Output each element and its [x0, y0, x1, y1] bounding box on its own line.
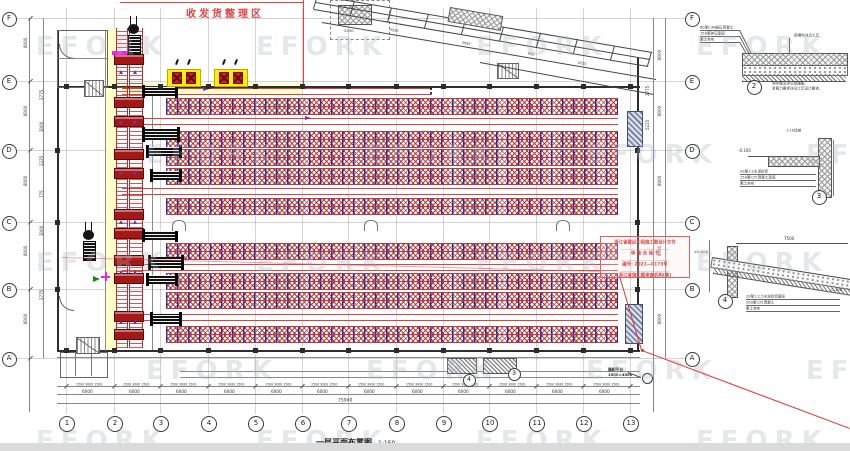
room-bottom-left — [60, 352, 108, 378]
green-arrow — [93, 276, 100, 282]
column — [158, 348, 163, 353]
rack-row — [166, 206, 618, 215]
dim-sub: 1500 3000 1500 — [499, 383, 525, 386]
conveyor-station — [114, 149, 144, 160]
d4-vline — [709, 240, 710, 292]
dim-bay: 6000 — [412, 390, 423, 394]
column — [346, 348, 351, 353]
grid-bubble-col-9: 9 — [436, 416, 452, 432]
dim-left: 8000 — [24, 38, 28, 48]
grid-bubble-col-5: 5 — [248, 416, 264, 432]
watermark: EFORK — [806, 356, 850, 386]
conveyor-line — [129, 28, 143, 348]
dim-bay: 6000 — [176, 390, 187, 394]
ramp-hatch — [447, 7, 503, 31]
grid-bubble-row-left-D: D — [2, 144, 17, 159]
floor-plan-layer: 245042503050950425060001500 3000 1500600… — [0, 0, 850, 451]
column — [346, 84, 351, 89]
aisle-conveyor-lines — [122, 314, 618, 321]
column — [158, 84, 163, 89]
aisle-conveyor-lines — [122, 188, 618, 195]
dim-left: 8000 — [24, 106, 28, 116]
column — [534, 348, 539, 353]
d4-dim — [736, 243, 848, 244]
dim-sub: 1500 3000 1500 — [546, 383, 572, 386]
flow-arrow-up — [119, 320, 123, 324]
partition-line — [180, 371, 640, 372]
hook-mark — [175, 59, 179, 65]
grid-bubble-col-12: 12 — [576, 416, 592, 432]
conveyor-station — [114, 273, 144, 284]
column-symbol — [172, 220, 186, 231]
d2-leader — [700, 42, 740, 43]
grid-bubble-row-left-B: B — [2, 283, 17, 298]
grid-bubble-row-left-A: A — [2, 352, 17, 367]
d3-top: 1:10找坡 — [786, 129, 801, 133]
pallet — [172, 72, 182, 84]
d3-elev: -0.100 — [738, 149, 751, 153]
stacker-crane — [148, 275, 176, 284]
stamp-line-2: 审 查 合 格 书 — [621, 249, 669, 255]
d4-dim-label: 7500 — [784, 237, 794, 241]
ramp-dim: 950 — [527, 52, 534, 57]
column — [581, 348, 586, 353]
dim-right: 8000 — [658, 50, 662, 60]
stamp-line-3: 编号: 2021—0173号 — [621, 260, 669, 266]
conveyor-station — [114, 228, 144, 239]
dim-sub: 1500 3000 1500 — [218, 383, 244, 386]
review-stamp: 浙江省建设工程施工图设计文件 审 查 合 格 书 编号: 2021—0173号 … — [600, 236, 690, 278]
grid-bubble-col-11: 11 — [529, 416, 545, 432]
platform-note-1: 装卸平台 — [608, 368, 623, 372]
stacker-crane — [152, 314, 180, 324]
column — [64, 84, 69, 89]
dim-bay: 6000 — [505, 390, 516, 394]
magenta-cross-v — [105, 272, 107, 281]
grid-bubble-col-10: 10 — [482, 416, 498, 432]
column — [628, 348, 633, 353]
column — [300, 348, 305, 353]
grid-line-row-A — [14, 358, 700, 359]
dim-bay: 6000 — [129, 390, 140, 394]
stairs — [76, 337, 100, 354]
rack-row — [166, 139, 618, 148]
grid-line-col-3 — [160, 8, 161, 414]
dim-left: 2775 — [40, 290, 44, 300]
dim-sub: 1500 3000 1500 — [265, 383, 291, 386]
grid-bubble-col-3: 3 — [153, 416, 169, 432]
dim-sub: 1500 3000 1500 — [170, 383, 196, 386]
column — [394, 348, 399, 353]
dim-total: 75940 — [338, 398, 352, 403]
grid-bubble-row-right-A: A — [685, 352, 700, 367]
dock-hatch — [627, 111, 643, 147]
flow-arrow-right — [305, 116, 311, 120]
page-bottom-band — [0, 443, 850, 451]
flow-arrow-up — [119, 70, 123, 74]
grid-bubble-row-right-B: B — [685, 283, 700, 298]
column — [300, 84, 305, 89]
dim-right: 8000 — [658, 106, 662, 116]
dim-right: 5225 — [646, 120, 650, 130]
grid-bubble-row-right-E: E — [685, 75, 700, 90]
dim-left: 775 — [40, 190, 44, 198]
column — [206, 84, 211, 89]
stacker-crane — [152, 171, 180, 180]
exterior-ramp — [447, 358, 477, 374]
column-symbol — [556, 220, 570, 231]
detail-number-2: 2 — [747, 80, 762, 95]
dim-line — [29, 18, 30, 412]
grid-bubble-col-4: 4 — [201, 416, 217, 432]
conveyor-station — [114, 97, 144, 108]
d2-bolt — [789, 38, 790, 53]
column-symbol — [364, 220, 378, 231]
flow-arrow-up — [133, 220, 137, 224]
ramp-dim: 4250 — [389, 28, 398, 33]
grid-bubble-row-left-C: C — [2, 216, 17, 231]
rack-row — [166, 300, 618, 309]
hook-mark — [234, 59, 238, 65]
dim-bay: 6000 — [552, 390, 563, 394]
dim-left: 2225 — [40, 156, 44, 166]
dim-left: 3000 — [40, 226, 44, 236]
stacker-crane — [144, 231, 176, 240]
d3-slab-line — [748, 156, 768, 157]
dim-bay: 6000 — [224, 390, 235, 394]
cad-drawing-canvas: 245042503050950425060001500 3000 1500600… — [0, 0, 850, 451]
conveyor-station — [114, 54, 144, 65]
dim-right: 8000 — [658, 314, 662, 324]
conveyor-line — [116, 28, 128, 348]
zone-red-vline — [303, 0, 304, 87]
detail-callout: 3 — [508, 368, 521, 381]
magenta-marker — [112, 51, 127, 55]
hook-mark — [187, 59, 191, 65]
dim-sub: 1500 3000 1500 — [406, 383, 432, 386]
column — [55, 287, 60, 292]
flow-arrow-up — [133, 70, 137, 74]
zone-label: 收发货整理区 — [186, 5, 264, 20]
flow-arrow-up — [133, 170, 137, 174]
pallet — [233, 72, 243, 84]
column — [55, 148, 60, 153]
dim-left: 2775 — [40, 90, 44, 100]
rack-row — [166, 334, 618, 343]
dim-bay: 6000 — [364, 390, 375, 394]
d3-vline — [833, 140, 834, 196]
column — [112, 84, 117, 89]
grid-bubble-row-left-E: E — [2, 75, 17, 90]
stairs — [84, 80, 104, 97]
stamp-line-4: 浙江省施工图审查机构(章) — [621, 271, 669, 277]
dim-sub: 1500 3000 1500 — [593, 383, 619, 386]
zone-red-hline — [120, 2, 303, 3]
pallet — [186, 72, 196, 84]
forklift-head — [83, 230, 94, 240]
stacker-crane — [148, 147, 180, 156]
column — [534, 84, 539, 89]
column — [394, 84, 399, 89]
d3-leader — [740, 186, 816, 187]
partition-line — [57, 357, 640, 358]
d2-note-2: 承载力要求详见工艺设计要求。 — [772, 87, 822, 91]
grid-bubble-col-13: 13 — [623, 416, 639, 432]
dim-bay: 6000 — [271, 390, 282, 394]
grid-bubble-row-right-F: F — [685, 12, 700, 27]
grid-bubble-col-2: 2 — [107, 416, 123, 432]
d2-note-1: 地坪做法详见结施图, — [772, 82, 806, 86]
detail-callout: 4 — [463, 374, 476, 387]
d4-elev-left: ±0.000 — [694, 250, 708, 254]
red-leader-dot — [641, 349, 644, 352]
room-divider — [91, 352, 92, 376]
detail-number-4: 4 — [718, 294, 733, 309]
column — [441, 348, 446, 353]
flow-arrow-up — [119, 120, 123, 124]
line-end-dot — [430, 92, 432, 94]
conveyor-station — [114, 329, 144, 340]
column — [635, 220, 640, 225]
column — [253, 84, 258, 89]
dim-sub: 1500 3000 1500 — [123, 383, 149, 386]
dim-sub: 1500 3000 1500 — [76, 383, 102, 386]
stamp-line-1: 浙江省建设工程施工图设计文件 — [621, 239, 669, 245]
flow-arrow-up — [133, 320, 137, 324]
grid-bubble-col-6: 6 — [295, 416, 311, 432]
forklift-body — [128, 35, 141, 55]
dim-line — [43, 18, 44, 358]
flow-arrow-up — [133, 120, 137, 124]
flow-arrow-up — [133, 270, 137, 274]
d3-wall — [818, 138, 832, 198]
column — [635, 287, 640, 292]
d4-leader — [746, 311, 840, 312]
red-leader — [642, 350, 850, 429]
grid-bubble-row-right-D: D — [685, 144, 700, 159]
grid-bubble-col-1: 1 — [59, 416, 75, 432]
dim-line — [653, 18, 654, 412]
rack-row — [166, 157, 618, 166]
dim-left: 8000 — [24, 314, 28, 324]
dim-sub: 1500 3000 1500 — [358, 383, 384, 386]
rack-row — [166, 251, 618, 260]
ramp-tick — [647, 52, 652, 66]
hook-mark — [222, 59, 226, 65]
line-end-dot — [430, 88, 432, 90]
column — [55, 220, 60, 225]
rack-row — [166, 176, 618, 185]
grid-bubble-row-right-C: C — [685, 216, 700, 231]
column — [64, 348, 69, 353]
grid-bubble-row-left-F: F — [2, 12, 17, 27]
forklift-head — [128, 24, 139, 34]
dim-left: 8000 — [24, 176, 28, 186]
column — [253, 348, 258, 353]
dim-bay: 6000 — [317, 390, 328, 394]
flow-arrow-up — [119, 270, 123, 274]
column — [441, 84, 446, 89]
column — [628, 84, 633, 89]
d4-elev-right: -0.150 — [830, 288, 842, 292]
grid-line-col-13 — [630, 8, 631, 414]
dim-sub: 1500 3000 1500 — [311, 383, 337, 386]
column — [581, 84, 586, 89]
dim-line — [665, 18, 666, 358]
dim-left: 3000 — [40, 122, 44, 132]
room-divider — [75, 352, 76, 376]
column — [635, 148, 640, 153]
conveyor-station — [114, 209, 144, 220]
column — [206, 348, 211, 353]
flow-arrow-up — [119, 170, 123, 174]
rack-row — [166, 106, 618, 115]
dim-right: 2775 — [646, 86, 650, 96]
conveyor-station — [114, 255, 144, 266]
dim-bay: 6000 — [599, 390, 610, 394]
door-arc — [59, 296, 74, 311]
d3-slab — [768, 156, 820, 167]
column — [487, 348, 492, 353]
dim-line — [57, 403, 640, 404]
pallet — [219, 72, 229, 84]
aisle-conveyor-lines — [122, 118, 618, 125]
dim-bay: 6000 — [82, 390, 93, 394]
dim-right: 8000 — [658, 176, 662, 186]
flow-arrow-up — [119, 220, 123, 224]
column — [112, 348, 117, 353]
rack-row — [166, 281, 618, 290]
dim-bay: 6000 — [458, 390, 469, 394]
partition-line — [180, 377, 640, 378]
detail-number-3: 3 — [812, 190, 827, 205]
detail-callout — [642, 373, 653, 384]
partition-line — [152, 88, 153, 350]
d2-label-right: 预埋件详见工艺 — [794, 34, 819, 38]
column — [487, 84, 492, 89]
dim-left: 8000 — [24, 246, 28, 256]
dim-2450: 2450 — [344, 29, 354, 33]
stacker-crane — [144, 129, 178, 140]
